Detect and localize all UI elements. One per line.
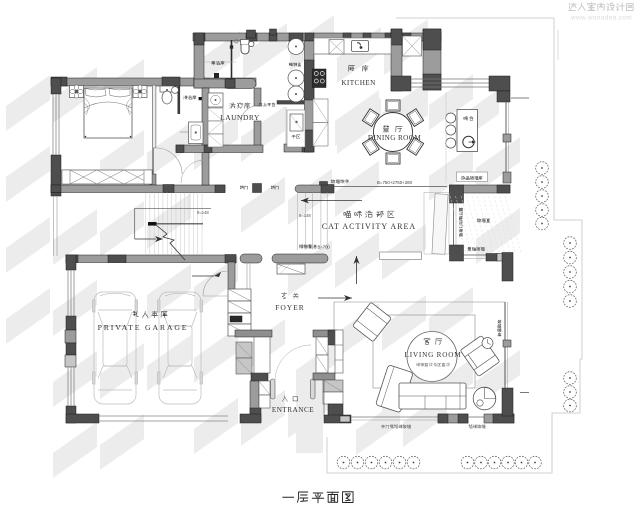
svg-text:B=750+2750+280: B=750+2750+280: [377, 180, 413, 185]
svg-text:9=148: 9=148: [299, 213, 311, 218]
svg-text:ENTRANCE: ENTRANCE: [272, 406, 314, 414]
svg-text:DINING ROOM: DINING ROOM: [368, 134, 422, 142]
svg-text:9=148: 9=148: [197, 210, 209, 215]
svg-text:LIVING ROOM: LIVING ROOM: [405, 351, 462, 359]
svg-text:KITCHEN: KITCHEN: [341, 79, 376, 87]
svg-text:LAUNDRY: LAUNDRY: [220, 113, 260, 122]
svg-text:FOYER: FOYER: [275, 303, 305, 312]
svg-text:www.wonadea.com: www.wonadea.com: [570, 15, 632, 22]
svg-text:B=700: B=700: [318, 245, 331, 250]
svg-text:CAT ACTIVITY AREA: CAT ACTIVITY AREA: [322, 222, 416, 231]
svg-text:PRIVATE GARAGE: PRIVATE GARAGE: [98, 323, 189, 332]
